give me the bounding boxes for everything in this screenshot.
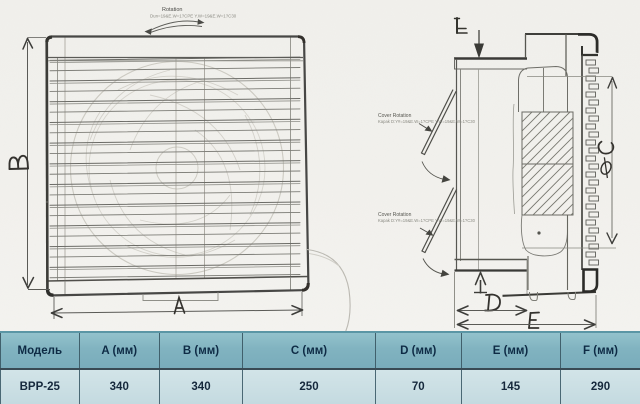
svg-text:Kapak D:Y#=19&E.W=1?CPE Y.W=19: Kapak D:Y#=19&E.W=1?CPE Y.W=19&E.W=1?C30 xyxy=(378,218,476,223)
svg-text:Rotation: Rotation xyxy=(162,7,183,13)
svg-text:Dun=19&E.W=1?CPE Y.W=19&E.W=1?: Dun=19&E.W=1?CPE Y.W=19&E.W=1?C30 xyxy=(150,14,237,19)
svg-text:Kapak D:Y#=19&E.W=1?CPE Y.W=19: Kapak D:Y#=19&E.W=1?CPE Y.W=19&E.W=1?C30 xyxy=(378,119,476,124)
